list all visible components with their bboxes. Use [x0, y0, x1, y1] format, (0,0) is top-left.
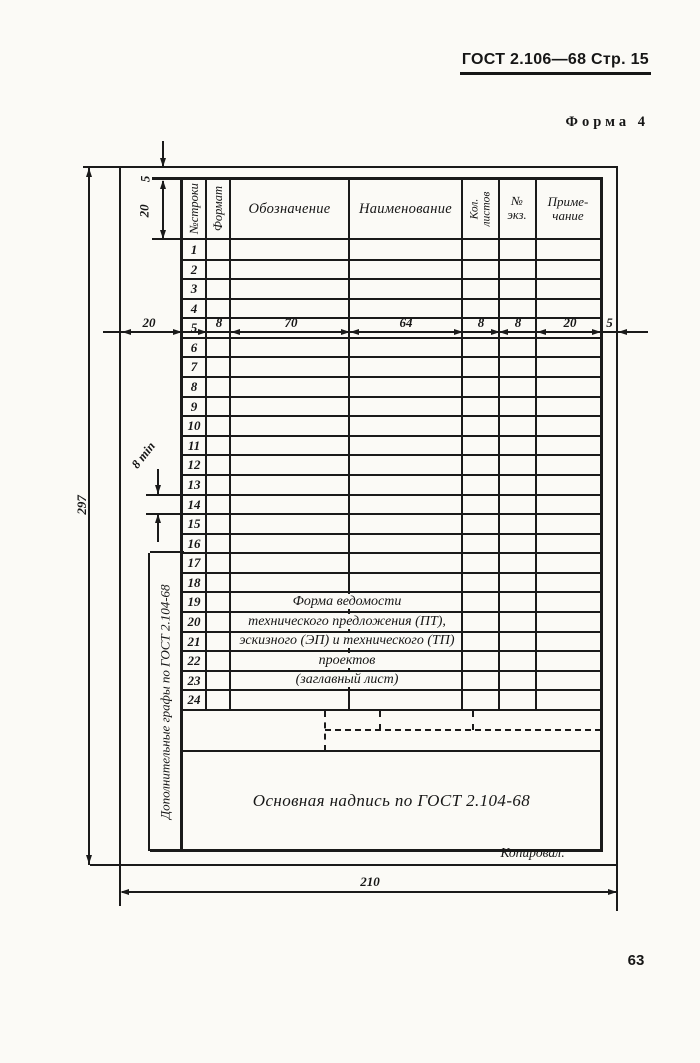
dim-designation-col: 70: [276, 315, 306, 330]
grid-line: [616, 167, 618, 911]
row-number: 8: [183, 377, 205, 397]
row-number: 23: [183, 671, 205, 691]
dim-header-height: 20: [131, 192, 157, 230]
row-line: [182, 552, 603, 554]
dimension-arrow: [592, 329, 601, 335]
row-line: [182, 474, 603, 476]
row-number: 14: [183, 495, 205, 515]
form-caption-line: технического предложения (ПТ),: [232, 612, 462, 632]
row-number: 15: [183, 514, 205, 534]
column-header-designation: Обозначение: [230, 179, 349, 239]
column-header-name: Наименование: [349, 179, 462, 239]
row-number: 2: [183, 260, 205, 280]
title-block-label: Основная надпись по ГОСТ 2.104-68: [183, 752, 600, 849]
column-header-sheet-count: Кол. листов: [461, 179, 499, 239]
form-caption-line: проектов: [232, 651, 462, 671]
dimension-arrow: [160, 230, 166, 239]
dim-right-margin: 5: [601, 315, 618, 330]
side-note-label: Дополнительные графы по ГОСТ 2.104-68: [159, 584, 173, 819]
dim-row-height-min: 8 min: [114, 432, 174, 478]
grid-line: [119, 167, 121, 906]
dimension-arrow: [155, 514, 161, 523]
row-number: 19: [183, 592, 205, 612]
document-page: ГОСТ 2.106—68 Стр. 15 Форма 4 1234567891…: [0, 0, 700, 1063]
row-line: [182, 494, 603, 496]
row-line: [182, 278, 603, 280]
dimension-arrow: [537, 329, 546, 335]
form-caption-line: Форма ведомости: [232, 592, 462, 612]
column-header-note: Приме- чание: [535, 179, 601, 239]
row-line: [182, 572, 603, 574]
dimension-arrow: [341, 329, 350, 335]
page-number: 63: [616, 952, 656, 969]
row-line: [182, 376, 603, 378]
dash-mark: [472, 711, 474, 730]
row-number: 18: [183, 573, 205, 593]
row-number: 16: [183, 534, 205, 554]
grid-line: [122, 891, 617, 893]
side-note: Дополнительные графы по ГОСТ 2.104-68: [149, 553, 182, 850]
row-line: [182, 356, 603, 358]
grid-line: [90, 864, 617, 866]
column-header-format: Формат: [206, 179, 231, 239]
document-header: ГОСТ 2.106—68 Стр. 15: [460, 51, 651, 75]
row-number: 20: [183, 612, 205, 632]
dimension-arrow: [173, 329, 182, 335]
dimension-arrow: [160, 158, 166, 167]
row-number: 5: [183, 318, 205, 338]
row-number: 22: [183, 651, 205, 671]
row-line: [182, 435, 603, 437]
row-line: [182, 337, 603, 339]
dimension-arrow: [122, 329, 131, 335]
grid-line: [146, 513, 183, 515]
row-number: 24: [183, 690, 205, 710]
dim-format-col: 8: [206, 315, 232, 330]
row-number: 12: [183, 455, 205, 475]
row-number: 3: [183, 279, 205, 299]
dimension-arrow: [454, 329, 463, 335]
dimension-arrow: [618, 329, 627, 335]
dim-note-col: 20: [555, 315, 585, 330]
column-header-format-label: Формат: [212, 186, 225, 231]
dash-mark: [324, 711, 326, 751]
dimension-arrow: [120, 889, 129, 895]
dim-copy-col: 8: [505, 315, 531, 330]
dimension-arrow: [155, 485, 161, 494]
row-line: [182, 396, 603, 398]
dim-top-margin: 5: [135, 166, 155, 192]
dimension-arrow: [608, 889, 617, 895]
row-number: 9: [183, 397, 205, 417]
dimension-arrow: [350, 329, 359, 335]
row-line: [182, 533, 603, 535]
form-caption-line: эскизного (ЭП) и технического (ТП): [232, 631, 462, 651]
dash-mark: [379, 711, 381, 730]
row-line: [182, 259, 603, 261]
form-caption-line: (заглавный лист): [232, 670, 462, 690]
dash-mark: [325, 729, 601, 731]
form-label: Форма 4: [566, 114, 649, 131]
column-header-line-number: №строки: [181, 179, 207, 239]
dimension-arrow: [231, 329, 240, 335]
row-line: [182, 513, 603, 515]
dimension-arrow: [86, 855, 92, 864]
row-line: [182, 298, 603, 300]
row-line: [182, 709, 603, 711]
row-number: 11: [183, 436, 205, 456]
dim-sheet-width: 210: [340, 874, 400, 889]
column-header-copy-number: № экз.: [498, 179, 536, 239]
row-number: 17: [183, 553, 205, 573]
row-number: 1: [183, 240, 205, 260]
row-number: 4: [183, 299, 205, 319]
dim-name-col: 64: [391, 315, 421, 330]
row-line: [182, 415, 603, 417]
dimension-arrow: [86, 168, 92, 177]
column-header-sheet-count-label: Кол. листов: [468, 192, 492, 227]
row-number: 6: [183, 338, 205, 358]
row-number: 7: [183, 357, 205, 377]
form-caption: Форма ведомости технического предложения…: [232, 592, 462, 690]
dimension-arrow: [160, 180, 166, 189]
dim-sheet-height: 297: [60, 483, 104, 527]
row-line: [182, 454, 603, 456]
column-header-line-number-label: №строки: [187, 184, 200, 235]
grid-line: [146, 494, 183, 496]
row-number: 13: [183, 475, 205, 495]
dim-left-margin: 20: [134, 315, 164, 330]
dim-sheets-col: 8: [468, 315, 494, 330]
copied-by-label: Копировал:: [478, 845, 588, 861]
row-number: 21: [183, 632, 205, 652]
row-number: 10: [183, 416, 205, 436]
